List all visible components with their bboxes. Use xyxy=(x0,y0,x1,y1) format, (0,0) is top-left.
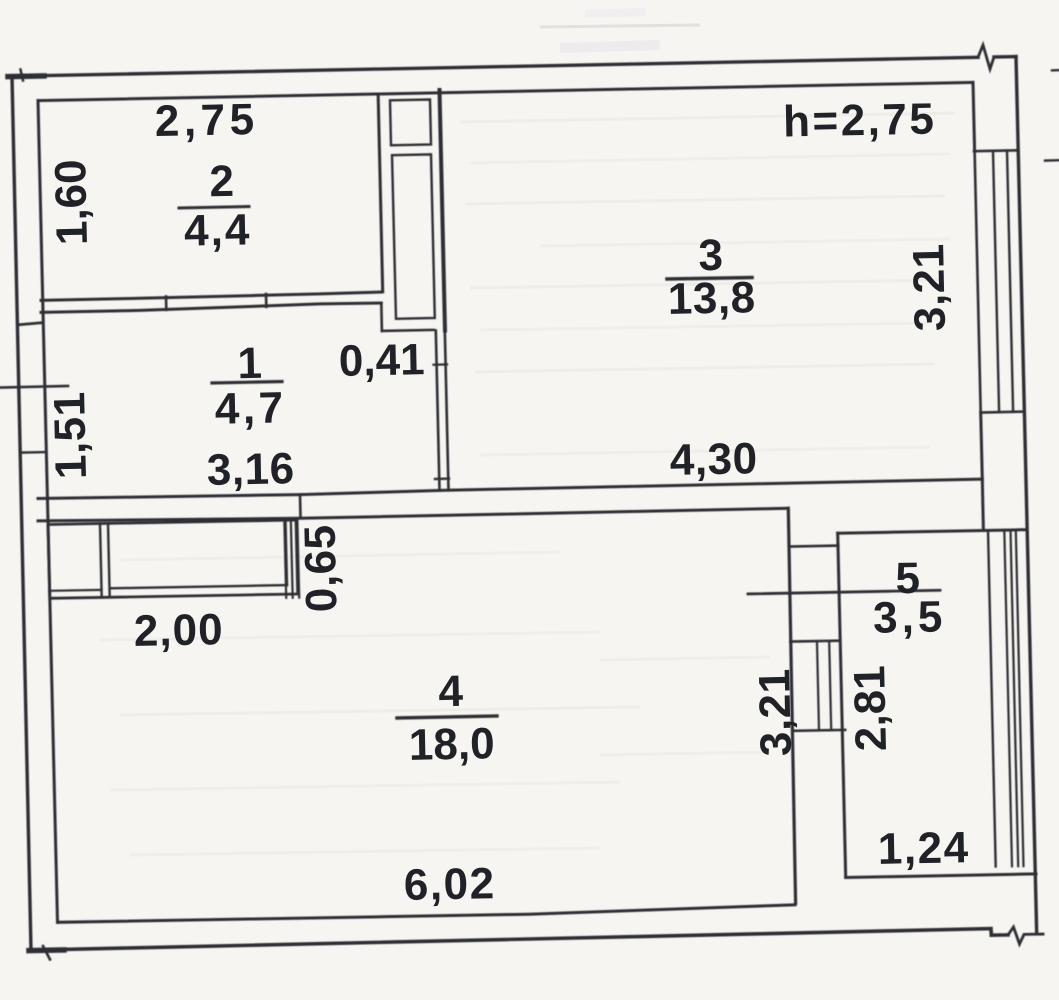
svg-text:18,0: 18,0 xyxy=(408,719,495,770)
svg-text:1,51: 1,51 xyxy=(45,391,96,480)
svg-text:3,5: 3,5 xyxy=(873,592,947,642)
svg-text:0,65: 0,65 xyxy=(296,524,347,613)
svg-text:1,60: 1,60 xyxy=(46,159,97,246)
svg-text:2,81: 2,81 xyxy=(845,665,896,752)
svg-text:3: 3 xyxy=(698,231,723,280)
svg-text:4: 4 xyxy=(438,667,464,716)
svg-text:1,24: 1,24 xyxy=(877,823,970,874)
svg-text:4,7: 4,7 xyxy=(214,383,287,433)
svg-text:6,02: 6,02 xyxy=(403,859,496,910)
svg-text:2,75: 2,75 xyxy=(154,95,259,146)
svg-text:2: 2 xyxy=(209,157,234,206)
svg-text:3,16: 3,16 xyxy=(206,444,295,495)
svg-text:3,21: 3,21 xyxy=(750,668,801,757)
svg-text:4,4: 4,4 xyxy=(184,205,252,255)
svg-text:13,8: 13,8 xyxy=(667,273,756,324)
svg-text:4,30: 4,30 xyxy=(669,434,758,485)
svg-text:3,21: 3,21 xyxy=(904,243,955,332)
svg-text:h=2,75: h=2,75 xyxy=(783,95,937,147)
svg-text:1: 1 xyxy=(237,339,262,388)
svg-text:2,00: 2,00 xyxy=(133,605,224,656)
svg-text:0,41: 0,41 xyxy=(338,335,425,386)
